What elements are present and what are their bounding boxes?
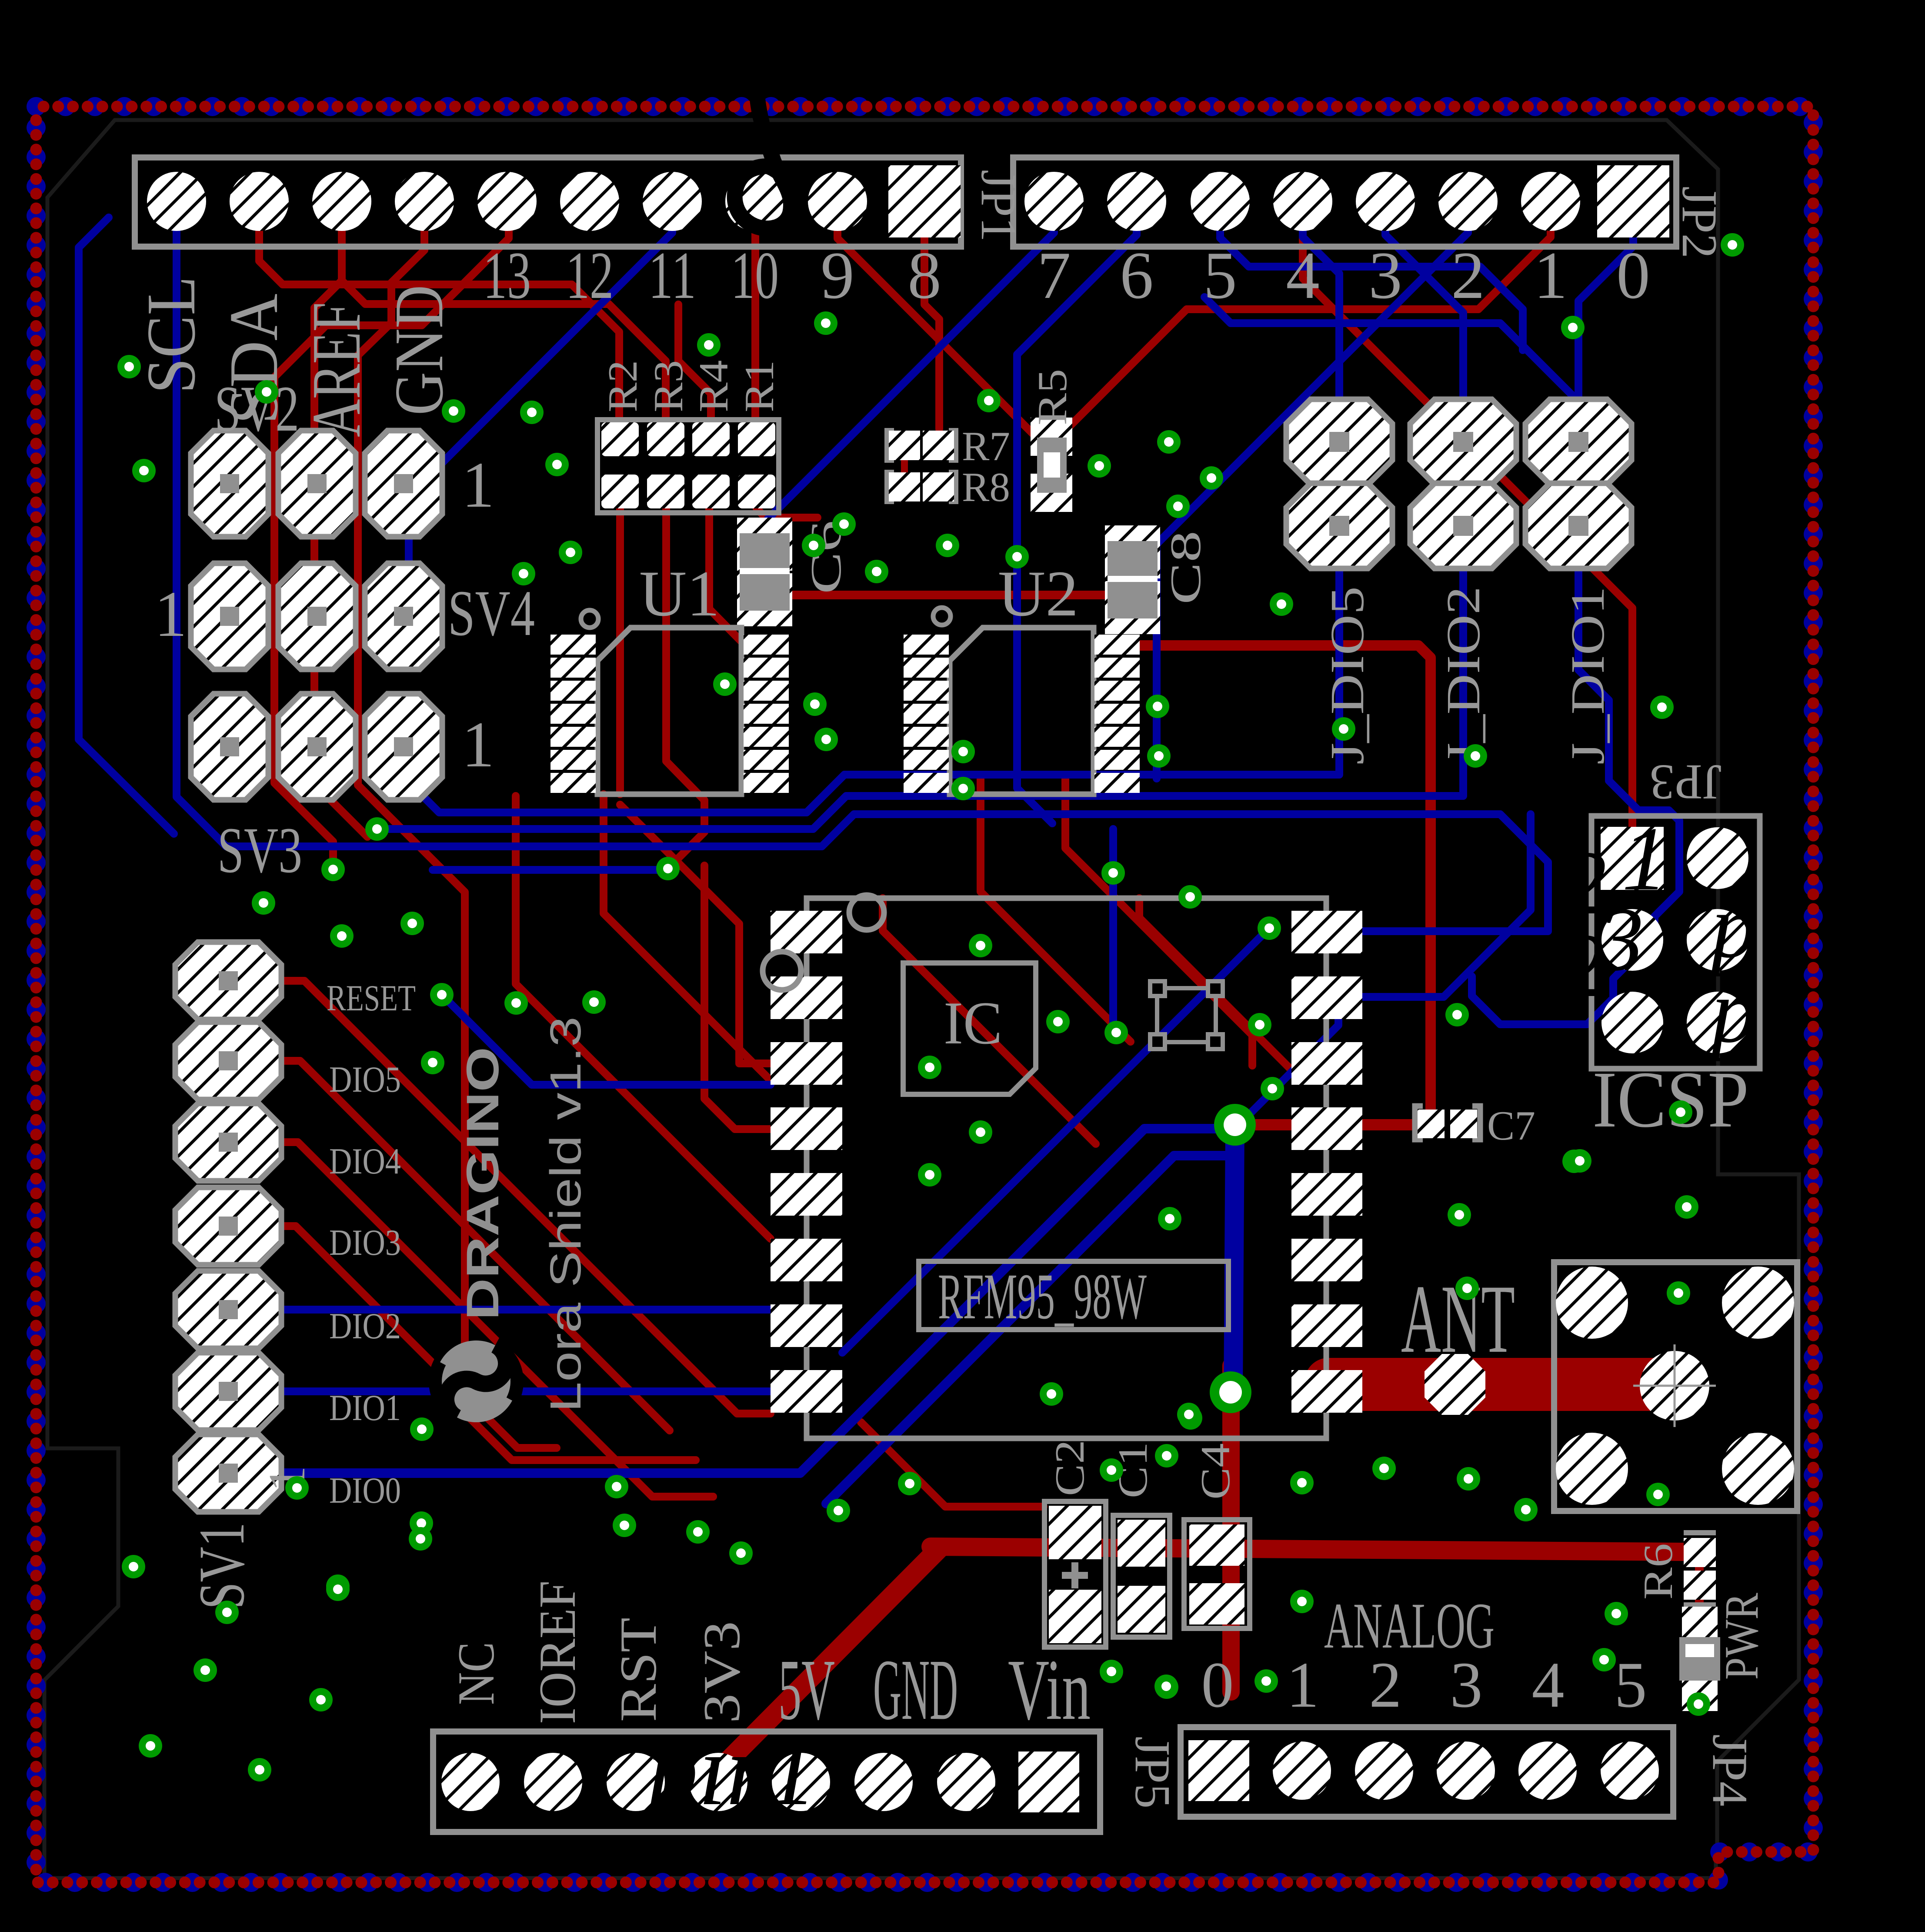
svg-text:SV3: SV3 — [217, 814, 302, 886]
svg-text:1: 1 — [1534, 238, 1568, 313]
svg-text:5: 5 — [1203, 238, 1237, 313]
svg-text:ICSP: ICSP — [1592, 1055, 1749, 1144]
svg-text:C2: C2 — [1047, 1440, 1093, 1496]
svg-text:JP4: JP4 — [1702, 1734, 1758, 1806]
svg-text:IOREF: IOREF — [528, 1581, 586, 1724]
svg-text:8: 8 — [907, 238, 941, 313]
svg-text:JP5: JP5 — [1125, 1736, 1180, 1808]
svg-text:GND: GND — [873, 1642, 958, 1738]
svg-text:JP3: JP3 — [1650, 755, 1722, 810]
svg-text:R6: R6 — [1635, 1543, 1681, 1600]
svg-text:3V3: 3V3 — [693, 1621, 751, 1723]
svg-text:1: 1 — [462, 449, 494, 521]
svg-text:DIO2: DIO2 — [329, 1306, 401, 1347]
svg-text:11: 11 — [648, 238, 696, 313]
svg-text:R5: R5 — [1029, 369, 1075, 425]
svg-text:1: 1 — [766, 1713, 817, 1826]
svg-text:RST: RST — [609, 1618, 667, 1722]
svg-text:5: 5 — [1615, 1649, 1647, 1721]
svg-text:pin: pin — [641, 1713, 777, 1826]
svg-text:7: 7 — [1037, 238, 1071, 313]
svg-text:R8: R8 — [962, 464, 1010, 510]
svg-text:2: 2 — [1559, 915, 1605, 1016]
svg-text:DIO3: DIO3 — [329, 1222, 401, 1263]
svg-text:U1: U1 — [639, 558, 720, 630]
svg-text:Lora Shield v1.3: Lora Shield v1.3 — [541, 1016, 590, 1412]
svg-text:J_DIO2: J_DIO2 — [1437, 586, 1490, 765]
svg-text:1: 1 — [462, 709, 494, 781]
svg-text:JP1: JP1 — [971, 170, 1026, 242]
svg-text:6: 6 — [1120, 238, 1154, 313]
svg-text:DIO0: DIO0 — [329, 1470, 401, 1511]
svg-text:C4: C4 — [1192, 1443, 1238, 1500]
svg-text:p: p — [1705, 961, 1757, 1062]
svg-text:R1: R1 — [736, 360, 782, 412]
svg-text:DIO5: DIO5 — [329, 1059, 401, 1100]
svg-text:1: 1 — [154, 578, 187, 650]
svg-text:R7: R7 — [962, 423, 1010, 469]
svg-text:C7: C7 — [1487, 1103, 1535, 1149]
svg-text:SV2: SV2 — [214, 373, 299, 445]
svg-text:SV1: SV1 — [186, 1522, 258, 1609]
svg-text:DRAGINO: DRAGINO — [457, 1047, 508, 1320]
svg-text:1: 1 — [1287, 1649, 1319, 1721]
svg-text:IC: IC — [944, 989, 1002, 1057]
svg-text:SV4: SV4 — [448, 577, 535, 649]
svg-text:J_DIO1: J_DIO1 — [1561, 586, 1614, 765]
svg-text:U2: U2 — [998, 558, 1078, 630]
svg-text:RFM95_98W: RFM95_98W — [938, 1260, 1147, 1333]
svg-text:3: 3 — [1450, 1649, 1483, 1721]
svg-text:3: 3 — [1368, 238, 1402, 313]
svg-text:PWR: PWR — [1715, 1592, 1768, 1680]
svg-text:R3: R3 — [645, 360, 691, 412]
svg-text:DIO4: DIO4 — [329, 1141, 401, 1182]
svg-text:DIO1: DIO1 — [329, 1387, 401, 1428]
svg-text:RESET: RESET — [327, 978, 416, 1019]
svg-text:12: 12 — [566, 238, 614, 313]
svg-text:2: 2 — [1451, 238, 1485, 313]
svg-text:2: 2 — [1369, 1649, 1402, 1721]
svg-text:0: 0 — [1201, 1649, 1234, 1721]
svg-text:4: 4 — [1286, 238, 1320, 313]
svg-text:C8: C8 — [1161, 531, 1210, 605]
svg-text:4: 4 — [1532, 1649, 1565, 1721]
svg-text:0: 0 — [1616, 238, 1650, 313]
svg-text:Vin: Vin — [1008, 1642, 1091, 1738]
svg-text:ANT: ANT — [1401, 1264, 1515, 1373]
svg-text:JP2: JP2 — [1672, 186, 1727, 258]
svg-text:10: 10 — [731, 238, 779, 313]
svg-text:9: 9 — [821, 238, 854, 313]
svg-text:R4: R4 — [691, 360, 737, 412]
svg-text:GND: GND — [380, 285, 457, 415]
svg-text:SCL: SCL — [132, 276, 210, 394]
svg-text:13: 13 — [483, 238, 531, 313]
svg-text:AREF: AREF — [297, 302, 375, 437]
svg-text:R2: R2 — [600, 360, 646, 412]
svg-text:NC: NC — [447, 1642, 505, 1705]
